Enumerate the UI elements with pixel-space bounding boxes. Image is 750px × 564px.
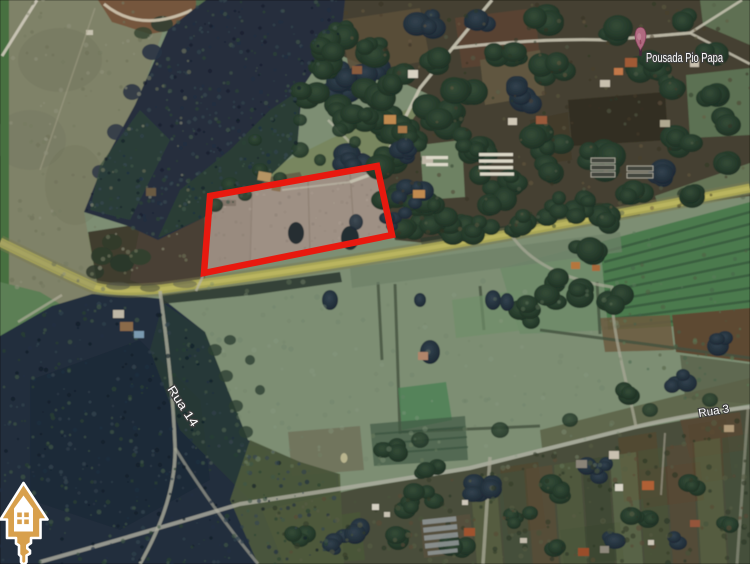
svg-text:Pousada Pio Papa: Pousada Pio Papa [646,51,723,65]
